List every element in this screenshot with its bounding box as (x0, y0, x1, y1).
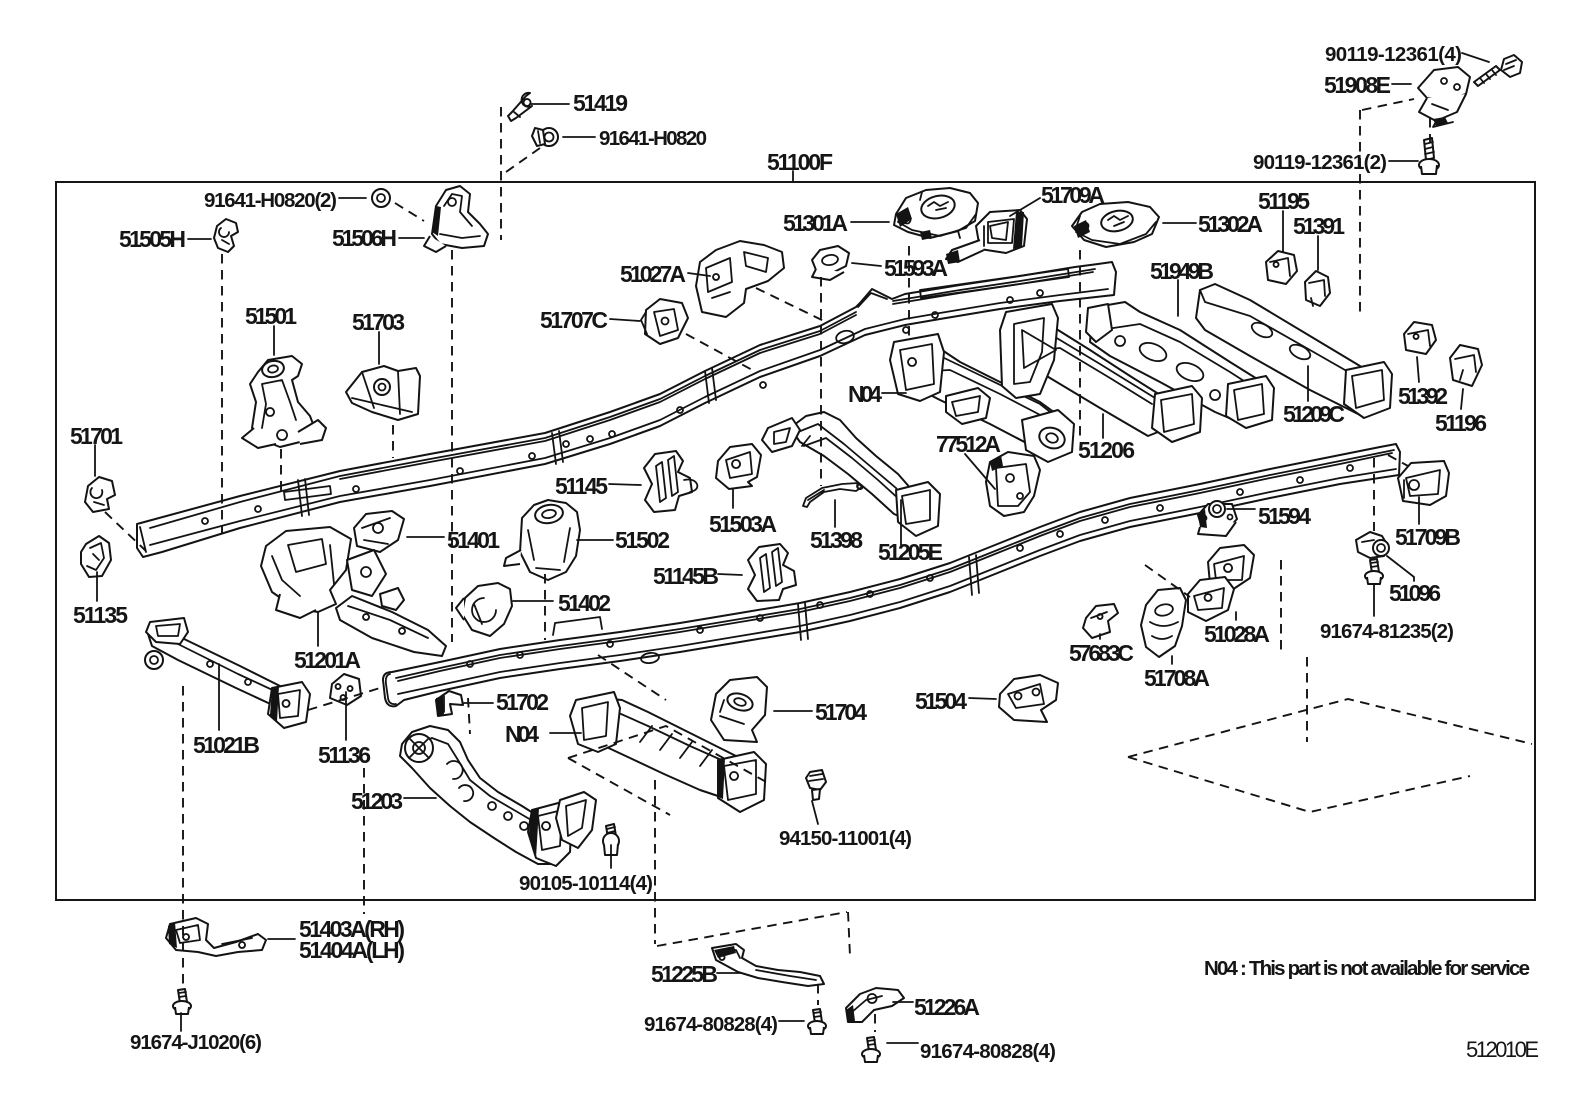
svg-text:51502: 51502 (615, 527, 670, 553)
svg-text:51195: 51195 (1258, 188, 1310, 214)
svg-text:51501: 51501 (245, 303, 297, 329)
svg-text:51096: 51096 (1389, 580, 1441, 606)
svg-text:51703: 51703 (352, 309, 405, 335)
svg-text:51709A: 51709A (1041, 182, 1105, 208)
svg-text:512010E: 512010E (1466, 1037, 1539, 1062)
svg-text:51145: 51145 (555, 473, 608, 499)
svg-text:51027A: 51027A (620, 261, 686, 287)
svg-text:90105-10114(4): 90105-10114(4) (519, 872, 653, 895)
svg-text:90119-12361(2): 90119-12361(2) (1253, 151, 1387, 174)
svg-text:51594: 51594 (1258, 503, 1311, 529)
svg-text:91674-81235(2): 91674-81235(2) (1320, 620, 1454, 643)
svg-text:51100F: 51100F (767, 149, 833, 175)
svg-text:51201A: 51201A (294, 647, 361, 673)
svg-text:51135: 51135 (73, 602, 128, 628)
svg-text:51504: 51504 (915, 688, 967, 714)
svg-text:51145B: 51145B (653, 563, 719, 589)
svg-text:51225B: 51225B (651, 961, 718, 987)
svg-text:51391: 51391 (1293, 213, 1345, 239)
svg-text:N04 : This part is not availab: N04 : This part is not available for ser… (1204, 957, 1530, 980)
svg-text:91641-H0820(2): 91641-H0820(2) (204, 189, 337, 212)
svg-text:51401: 51401 (447, 527, 500, 553)
svg-text:51702: 51702 (496, 689, 549, 715)
svg-text:51704: 51704 (815, 699, 867, 725)
svg-text:51506H: 51506H (332, 225, 397, 251)
svg-text:91674-80828(4): 91674-80828(4) (920, 1040, 1056, 1063)
svg-text:51398: 51398 (810, 527, 863, 553)
svg-text:51205E: 51205E (878, 539, 943, 565)
svg-text:51505H: 51505H (119, 226, 186, 252)
svg-text:51136: 51136 (318, 742, 371, 768)
svg-text:51209C: 51209C (1283, 401, 1345, 427)
svg-text:51392: 51392 (1398, 383, 1448, 409)
svg-text:90119-12361(4): 90119-12361(4) (1325, 43, 1462, 66)
svg-text:51203: 51203 (351, 788, 403, 814)
svg-text:51226A: 51226A (914, 994, 980, 1020)
svg-text:51707C: 51707C (540, 307, 608, 333)
svg-text:91641-H0820: 91641-H0820 (599, 127, 707, 150)
svg-text:51419: 51419 (573, 90, 628, 116)
svg-text:91674-J1020(6): 91674-J1020(6) (130, 1031, 262, 1054)
svg-text:51503A: 51503A (709, 511, 777, 537)
svg-text:51028A: 51028A (1204, 621, 1270, 647)
svg-text:51949B: 51949B (1150, 258, 1214, 284)
svg-text:N04: N04 (505, 721, 539, 747)
svg-text:57683C: 57683C (1069, 640, 1134, 666)
svg-text:51709B: 51709B (1395, 524, 1461, 550)
svg-text:51404A(LH): 51404A(LH) (299, 937, 405, 963)
svg-text:94150-11001(4): 94150-11001(4) (779, 827, 912, 850)
svg-text:51301A: 51301A (783, 210, 848, 236)
svg-text:91674-80828(4): 91674-80828(4) (644, 1013, 778, 1036)
svg-text:51593A: 51593A (884, 255, 948, 281)
svg-text:51708A: 51708A (1144, 665, 1210, 691)
svg-text:51196: 51196 (1435, 410, 1487, 436)
svg-text:N04: N04 (848, 381, 882, 407)
svg-text:51402: 51402 (558, 590, 611, 616)
svg-text:51302A: 51302A (1198, 211, 1263, 237)
svg-text:51908E: 51908E (1324, 72, 1391, 98)
svg-text:51206: 51206 (1078, 437, 1135, 463)
svg-text:51701: 51701 (70, 423, 123, 449)
svg-text:51021B: 51021B (193, 732, 260, 758)
svg-text:77512A: 77512A (936, 431, 1001, 457)
